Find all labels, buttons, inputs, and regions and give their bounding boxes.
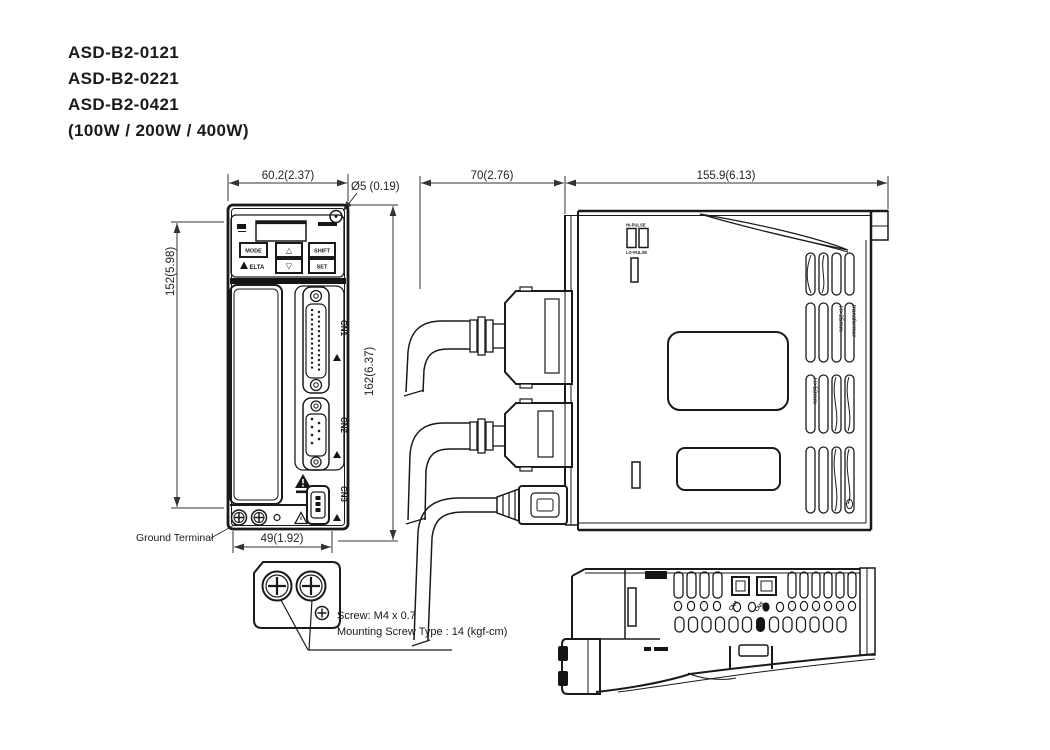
bottom-slot-row [675,617,846,632]
cn1-label: CN1 [339,320,348,337]
nameplate-recess [668,332,788,410]
screw-head-icon [316,607,329,620]
model-number-2: ASD-B2-0221 [68,69,179,88]
bottom-hole-row [674,601,855,611]
front-terminal-block [558,639,600,694]
model-number-1: ASD-B2-0121 [68,43,179,62]
dim-depth: 70(2.76) [471,170,514,182]
cn1-warning-icon [333,354,341,361]
detail-screw-1 [263,572,292,601]
mode-button-label: MODE [245,249,262,255]
power-rating: (100W / 200W / 400W) [68,121,249,140]
shift-button-label: SHIFT [314,249,331,255]
cn2-connector [303,398,329,470]
vent-note-1: H>25mm [837,306,844,332]
down-arrow-icon: ▽ [286,262,293,271]
bottom-chamfer-outer [596,654,875,692]
bottom-chamfer-inner [618,659,875,692]
technical-drawing: ASD-B2-0121 ASD-B2-0221 ASD-B2-0421 (100… [0,0,1050,750]
dim-total-height: 162(6.37) [364,347,376,396]
brand-label: ELTA [250,265,265,271]
hi-pulse-label: HI-PULSE [626,223,646,228]
bottom-mark-2 [654,647,668,651]
cn2-warning-icon [333,451,341,458]
panel-divider [230,278,346,284]
model-number-3: ASD-B2-0421 [68,95,179,114]
cn5-connector [757,577,776,595]
ground-screw-1 [232,510,247,525]
cn1-connector [303,287,329,393]
dim-hole: Ø5 (0.19) [351,181,400,193]
bottom-recess [739,645,768,656]
rear-bracket-bottom [860,568,875,655]
ground-terminal-strip [230,505,307,525]
side-slot [631,258,638,282]
cn3-label: CN3 [339,486,348,503]
cn4-connector [732,577,749,595]
ground-terminal-label: Ground Terminal [136,532,213,544]
mounting-screw-note: Mounting Screw Type : 14 (kgf-cm) [337,626,507,638]
detail-screw-2 [297,572,326,601]
side-slot-lower [632,462,640,488]
drawing-page: ASD-B2-0121 ASD-B2-0221 ASD-B2-0421 (100… [0,0,1050,750]
cn3-warning-icon [333,514,341,521]
vent-note-3: H>50mm [811,378,818,404]
bottom-slot [628,588,636,626]
screw-note: Screw: M4 x 0.7 [337,610,416,622]
bottom-mark-1 [644,647,651,651]
bottom-vents-left [674,572,722,598]
connector-column: CN1 CN2 CN3 [295,286,348,524]
vent-note-2: transformer [850,305,857,337]
cn2-label: CN2 [339,417,348,434]
dim-side-width: 155.9(6.13) [697,170,756,182]
terminal-cover [230,285,282,504]
up-arrow-icon: △ [286,246,293,255]
set-button-label: SET [317,265,328,271]
dim-front-width: 60.2(2.37) [262,170,315,182]
label-recess [677,448,780,490]
terminal-tab-2 [558,671,568,686]
ground-screw-2 [252,510,267,525]
rear-mounting-bracket [871,211,888,240]
front-view-dimensions: 60.2(2.37) Ø5 (0.19) 152(5.98) 162(6.37)… [136,170,400,553]
front-view: MODE △ SHIFT ELTA ▽ SET [228,205,348,529]
terminal-tab-1 [558,646,568,661]
keypad-panel: MODE △ SHIFT ELTA ▽ SET [231,211,344,278]
cn1-hood [505,291,572,384]
dim-base-width: 49(1.92) [261,533,304,545]
cn3-connector [307,486,329,524]
cn1-cable [404,287,572,396]
lo-pulse-label: LO-PULSE [626,250,647,255]
side-view: HI-PULSE LO-PULSE H>25mm transformer H>5… [404,211,888,646]
bottom-view: CN4 CN5 [558,568,875,694]
indicator-hole [274,515,280,521]
charge-led-icon [237,224,246,229]
cn3-plug [519,486,567,524]
delta-logo-icon [240,262,248,270]
cn3-cable [412,486,567,646]
pulse-switch: HI-PULSE LO-PULSE [626,223,648,256]
dim-mount-height: 152(5.98) [165,247,177,296]
side-view-dimensions: 70(2.76) 155.9(6.13) [420,170,888,289]
housing-swoosh [700,214,848,250]
screw-detail: Screw: M4 x 0.7 Mounting Screw Type : 14… [254,562,507,650]
title-block: ASD-B2-0121 ASD-B2-0221 ASD-B2-0421 (100… [68,43,249,140]
bottom-vents-right [788,572,856,598]
bottom-label [645,571,667,579]
